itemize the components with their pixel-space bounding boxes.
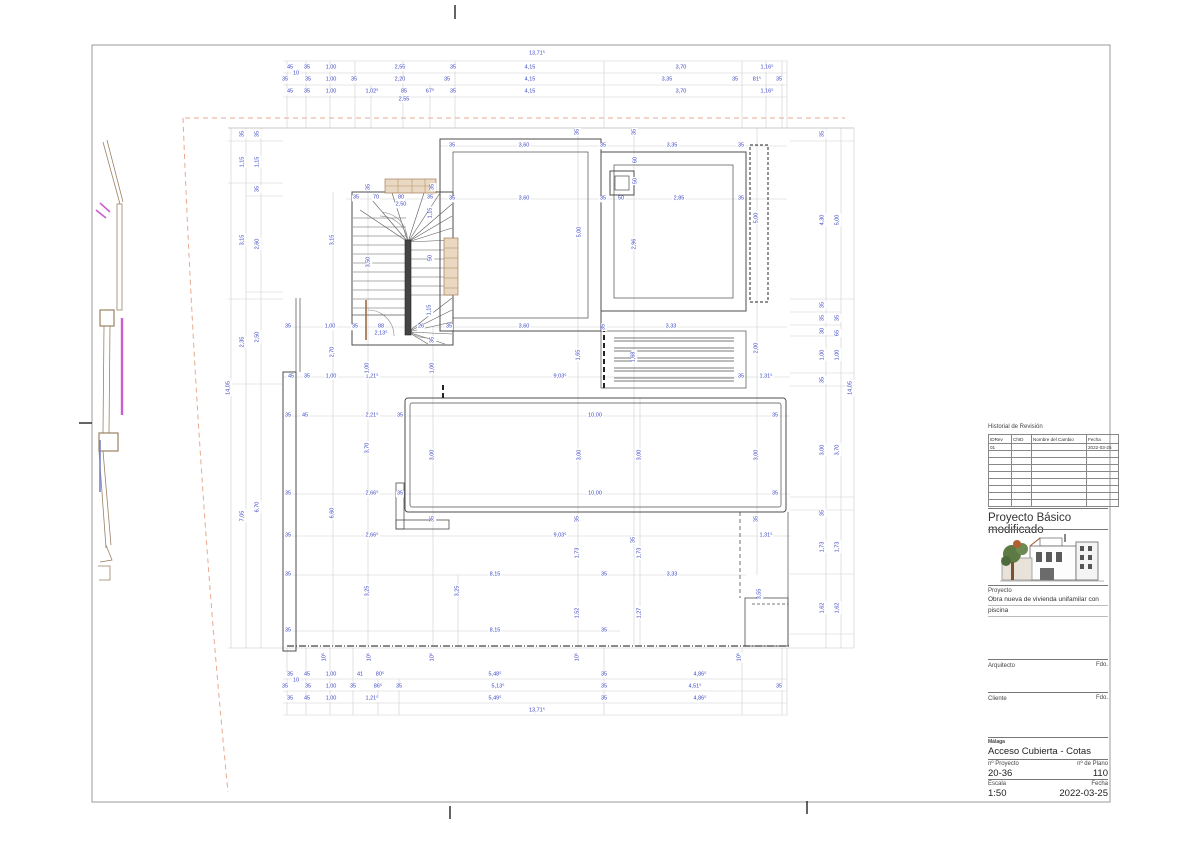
dimension-label: 35 (820, 314, 826, 322)
dimension-label: 35 (601, 323, 607, 331)
project-status: Proyecto Básico modificado (988, 512, 1110, 536)
dimension-label: 8,15 (489, 628, 502, 634)
dimension-label: 45 (303, 696, 311, 702)
dimension-label: 65 (835, 329, 841, 337)
dimension-label: 3,70 (675, 65, 688, 71)
dimension-label: 10⁵ (322, 652, 328, 662)
dimension-label: 35 (445, 324, 453, 330)
dimension-label: 35 (255, 185, 261, 193)
dimension-label: 3,70 (835, 444, 841, 457)
dimension-label: 2,66⁵ (365, 491, 380, 497)
dimension-label: 2,55 (398, 97, 411, 103)
dimension-label: 35 (820, 130, 826, 138)
dimension-label: 1,00 (325, 696, 338, 702)
dimension-label: 35 (426, 195, 434, 201)
dimension-label: 4,15 (524, 89, 537, 95)
dimension-label: 35 (737, 196, 745, 202)
dimension-label: 35 (284, 413, 292, 419)
dimension-label: 10⁵ (367, 652, 373, 662)
dimension-label: 35 (575, 128, 581, 136)
dimension-label: 5,00 (835, 214, 841, 227)
city-label: Málaga (988, 739, 1005, 745)
dimension-label: 14,05 (226, 380, 232, 396)
dimension-label: 35 (396, 413, 404, 419)
dimension-label: 1,00 (820, 349, 826, 362)
dimension-label: 35 (737, 143, 745, 149)
louver-slats (601, 331, 746, 388)
dimension-label: 35 (443, 77, 451, 83)
dimension-label: 3,15 (240, 234, 246, 247)
building-walls (283, 139, 790, 651)
dimension-label: 5,49⁵ (488, 696, 503, 702)
dimension-label: 9,03⁵ (553, 374, 568, 380)
dimension-label: 26 (417, 324, 425, 330)
dimension-label: 35 (599, 143, 607, 149)
dimension-label: 35 (820, 376, 826, 384)
dimension-label: 3,00 (430, 449, 436, 462)
dimension-label: 3,33 (666, 572, 679, 578)
plan-no-label: nº de Plano (1048, 761, 1108, 767)
rev-col-idrev: IDRev (989, 435, 1012, 444)
drawing-title: Acceso Cubierta - Cotas (988, 746, 1091, 757)
revision-table: IDRev ChID Nombre del Cambio Fecha 01 20… (988, 434, 1119, 507)
dimension-label: 35 (575, 515, 581, 523)
dimension-label: 1,00 (325, 684, 338, 690)
dimension-label: 5,00 (577, 226, 583, 239)
dimension-label: 35 (599, 196, 607, 202)
dimension-label: 35 (600, 628, 608, 634)
dimension-label: 35 (281, 77, 289, 83)
dimension-label: 35 (284, 324, 292, 330)
dimension-label: 35 (284, 533, 292, 539)
dimension-label: 1,27 (637, 607, 643, 620)
dimension-chain-lines (228, 61, 854, 715)
dimension-label: 10 (292, 678, 300, 684)
dimension-label: 88 (377, 324, 385, 330)
dimension-label: 7,05 (240, 510, 246, 523)
dimension-label: 35 (430, 336, 436, 344)
dimension-label: 35 (771, 413, 779, 419)
dimension-label: 1,00 (325, 65, 338, 71)
dimension-label: 35 (304, 684, 312, 690)
dimension-label: 35 (352, 195, 360, 201)
dimension-label: 3,15 (330, 234, 336, 247)
dimension-label: 1,16⁵ (760, 65, 775, 71)
project-no-label: nº Proyecto (988, 761, 1019, 767)
dimension-label: 1,73 (637, 547, 643, 560)
dimension-label: 3,00 (754, 449, 760, 462)
dimension-label: 35 (304, 77, 312, 83)
dimension-label: 1,21⁵ (365, 696, 380, 702)
dimension-label: 1,15 (428, 207, 434, 220)
house-illustration (1000, 534, 1104, 584)
boundary-wall (96, 140, 123, 580)
dimension-label: 1,00 (365, 362, 371, 375)
dimension-label: 35 (448, 143, 456, 149)
dimension-label: 1,15 (427, 304, 433, 317)
dimension-label: 35 (775, 77, 783, 83)
project-label: Proyecto (988, 588, 1012, 594)
dimension-label: 2,55 (394, 65, 407, 71)
dimension-label: 1,52 (575, 607, 581, 620)
dimension-label: 3,50 (366, 256, 372, 269)
drawing-sheet: 13,71⁵45351,002,55354,153,701,16⁵1035351… (0, 0, 1200, 849)
dimension-label: 10 (292, 71, 300, 77)
dimension-label: 35 (303, 374, 311, 380)
dimension-label: 1,00 (325, 77, 338, 83)
dimension-label: 2,60 (255, 238, 261, 251)
dimension-label: 35 (820, 301, 826, 309)
dimension-label: 10⁵ (737, 652, 743, 662)
dimension-label: 35 (631, 536, 637, 544)
dimension-label: 3,60 (518, 324, 531, 330)
dimension-label: 35 (600, 684, 608, 690)
dimension-label: 35 (449, 89, 457, 95)
dimension-label: 1,00 (325, 672, 338, 678)
dimension-label: 2,85 (673, 196, 686, 202)
dimension-label: 35 (303, 65, 311, 71)
dimension-label: 4,51⁵ (688, 684, 703, 690)
dimension-label: 80⁵ (375, 672, 385, 678)
dimension-label: 81⁵ (752, 77, 762, 83)
dimension-label: 1,21⁵ (365, 374, 380, 380)
dimension-label: 50 (617, 196, 625, 202)
dimension-label: 3,00 (577, 449, 583, 462)
dimension-label: 50 (428, 254, 434, 262)
dimension-label: 35 (448, 196, 456, 202)
dimension-label: 5,13⁵ (491, 684, 506, 690)
dimension-label: 6,70 (255, 501, 261, 514)
dimension-label: 35 (430, 183, 436, 191)
dimension-label: 2,70 (330, 346, 336, 359)
dimension-label: 1,31⁵ (759, 374, 774, 380)
dimension-label: 35 (240, 130, 246, 138)
dimension-label: 41 (356, 672, 364, 678)
dimension-label: 10,00 (587, 491, 603, 497)
project-no-value: 20-36 (988, 768, 1012, 779)
dimension-label: 2,66⁵ (365, 533, 380, 539)
dimension-label: 3,55 (757, 588, 763, 601)
dimension-label: 4,30 (820, 214, 826, 227)
dimension-label: 1,62 (820, 602, 826, 615)
dimension-label: 1,00 (325, 374, 338, 380)
scale-value: 1:50 (988, 788, 1007, 799)
dimension-label: 14,05 (848, 380, 854, 396)
dimension-label: 1,02⁵ (365, 89, 380, 95)
dimension-label: 1,00 (835, 349, 841, 362)
dimension-label: 10,00 (587, 413, 603, 419)
dimension-label: 3,25 (455, 585, 461, 598)
plan-no-value: 110 (1048, 768, 1108, 779)
dimension-label: 35 (771, 491, 779, 497)
dimension-label: 1,00 (324, 324, 337, 330)
dimension-label: 35 (395, 684, 403, 690)
dimension-label: 35 (255, 130, 261, 138)
dimension-label: 1,15 (240, 156, 246, 169)
dimension-label: 45 (301, 413, 309, 419)
dimension-label: 3,35 (666, 143, 679, 149)
date-label: Fecha (1048, 781, 1108, 787)
dimension-label: 3,25 (365, 585, 371, 598)
dimension-label: 5,48⁵ (488, 672, 503, 678)
dimension-label: 3,70 (365, 442, 371, 455)
dimension-label: 1,00 (430, 362, 436, 375)
dimension-label: 3,00 (637, 449, 643, 462)
dimension-label: 45 (286, 89, 294, 95)
dimension-label: 1,65 (576, 349, 582, 362)
dimension-label: 1,73 (820, 541, 826, 554)
dimension-label: 4,15 (524, 65, 537, 71)
revision-row: 01 2022-03-25 (989, 444, 1119, 451)
dimension-label: 1,15 (255, 156, 261, 169)
dimension-label: 45 (303, 672, 311, 678)
dimension-label: 35 (737, 374, 745, 380)
stair-rail (405, 240, 411, 335)
dimension-label: 3,00 (820, 444, 826, 457)
architect-sign-label: Fdo. (1096, 662, 1108, 668)
dimension-label: 35 (284, 491, 292, 497)
dimension-label: 2,21⁵ (365, 413, 380, 419)
dimension-label: 10⁵ (575, 652, 581, 662)
dimension-label: 35 (396, 491, 404, 497)
dimension-label: 1,68 (631, 351, 637, 364)
dimension-label: 2,96 (632, 238, 638, 251)
dimension-label: 80 (397, 195, 405, 201)
dimension-label: 1,16⁵ (760, 89, 775, 95)
dimension-label: 30 (820, 327, 826, 335)
dimension-label: 13,71⁵ (528, 51, 546, 57)
dimension-label: 2,13⁵ (374, 331, 389, 337)
dimension-label: 4,86⁵ (693, 696, 708, 702)
client-sign-label: Fdo. (1096, 695, 1108, 701)
dimension-label: 2,50 (395, 202, 408, 208)
client-label: Cliente (988, 696, 1007, 702)
architect-label: Arquitecto (988, 663, 1015, 669)
dimension-label: 3,60 (518, 196, 531, 202)
dimension-label: 2,50 (255, 331, 261, 344)
dimension-label: 35 (286, 696, 294, 702)
dimension-label: 45 (287, 374, 295, 380)
dimension-label: 35 (284, 572, 292, 578)
dimension-label: 35 (754, 515, 760, 523)
dimension-label: 35 (366, 183, 372, 191)
dimension-label: 35 (775, 684, 783, 690)
dimension-label: 1,00 (325, 89, 338, 95)
dimension-label: 60 (633, 156, 639, 164)
revision-history-title: Historial de Revisión (988, 424, 1043, 430)
dimension-label: 4,15 (524, 77, 537, 83)
dimension-label: 3,60 (518, 143, 531, 149)
dimension-label: 1,31⁵ (759, 533, 774, 539)
stair-side-rail (444, 238, 458, 295)
dimension-label: 10⁵ (430, 652, 436, 662)
dimension-label: 35 (351, 324, 359, 330)
dimension-label: 8,15 (489, 572, 502, 578)
dimension-label: 35 (284, 628, 292, 634)
rev-col-chid: ChID (1012, 435, 1032, 444)
dimension-label: 86⁵ (373, 684, 383, 690)
dimension-label: 35 (731, 77, 739, 83)
dimension-label: 35 (632, 128, 638, 136)
date-value: 2022-03-25 (1048, 788, 1108, 799)
dimension-label: 1,73 (575, 547, 581, 560)
dimension-label: 35 (835, 314, 841, 322)
dimension-label: 9,03⁵ (553, 533, 568, 539)
dimension-label: 3,35 (661, 77, 674, 83)
rev-col-name: Nombre del Cambio (1032, 435, 1087, 444)
dimension-label: 35 (430, 515, 436, 523)
dimension-label: 35 (349, 684, 357, 690)
dimension-label: 1,62 (835, 602, 841, 615)
dimension-label: 5,00 (754, 212, 760, 225)
dimension-label: 85 (400, 89, 408, 95)
dimension-label: 1,73 (835, 541, 841, 554)
dimension-label: 4,86⁵ (693, 672, 708, 678)
dimension-label: 2,00 (754, 342, 760, 355)
skylight (610, 171, 634, 195)
dimension-label: 35 (820, 509, 826, 517)
dimension-label: 70 (372, 195, 380, 201)
dimension-label: 35 (303, 89, 311, 95)
dimension-label: 67⁵ (425, 89, 435, 95)
project-description-line2: piscina (988, 607, 1008, 614)
dimension-label: 2,35 (240, 336, 246, 349)
dimension-label: 6,60 (330, 507, 336, 520)
dimension-label: 50 (633, 177, 639, 185)
dimension-label: 3,33 (665, 324, 678, 330)
dimension-label: 35 (281, 684, 289, 690)
dimension-label: 13,71⁵ (528, 708, 546, 714)
dimension-label: 35 (449, 65, 457, 71)
scale-label: Escala (988, 781, 1006, 787)
dimension-label: 2,20 (394, 77, 407, 83)
pool-step (396, 483, 449, 529)
dimension-label: 35 (600, 572, 608, 578)
project-description-line1: Obra nueva de vivienda unifamilar con (988, 596, 1099, 603)
dimension-label: 35 (600, 696, 608, 702)
dimension-label: 35 (350, 77, 358, 83)
dimension-label: 3,70 (675, 89, 688, 95)
dimension-label: 35 (600, 672, 608, 678)
rev-col-date: Fecha (1087, 435, 1119, 444)
